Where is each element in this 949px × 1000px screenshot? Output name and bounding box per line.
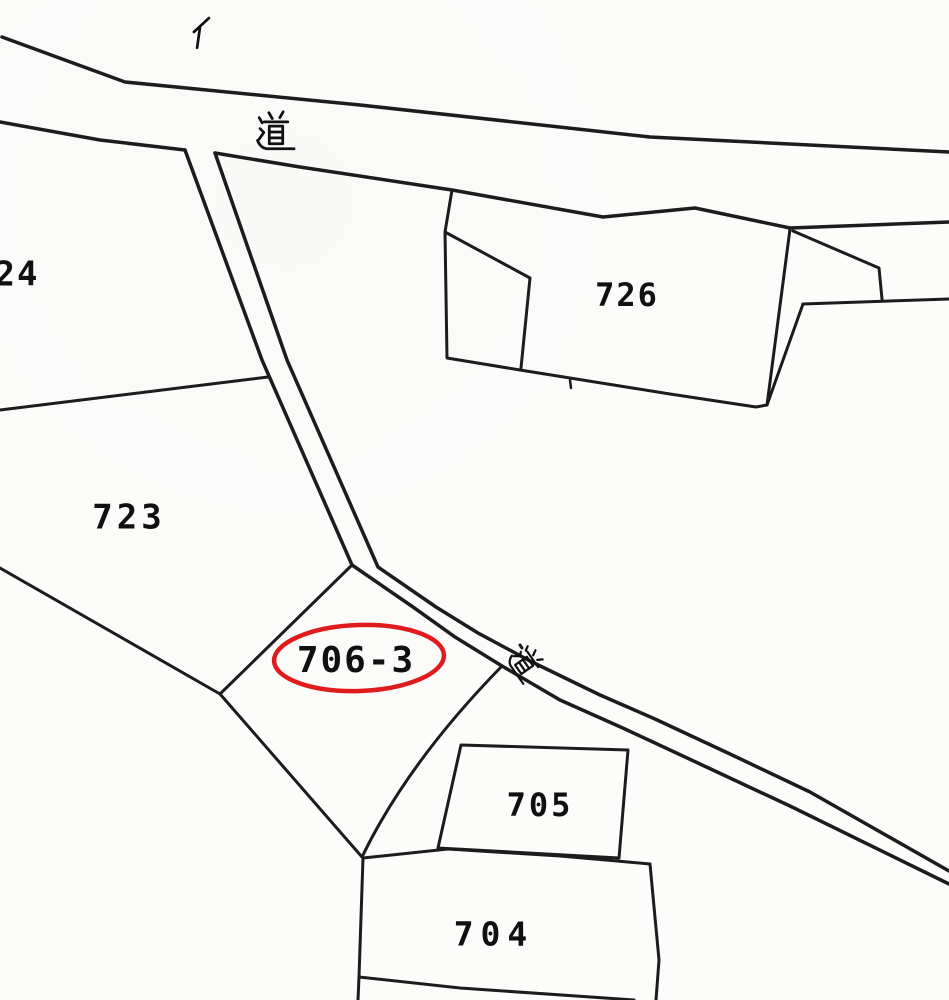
parcel-label-704: 704 [454, 915, 535, 954]
road-label-top [258, 112, 295, 149]
parcel-label-726: 726 [595, 276, 659, 314]
survey-tick [570, 380, 571, 388]
parcel-labels-layer: 24723726706-3705704 [0, 255, 659, 954]
road-main-bottom-edge-west [0, 122, 185, 150]
parcel-label-724: 24 [0, 255, 39, 295]
road-label-middle-stroke-0 [532, 650, 537, 655]
boundary-east-horizontal [803, 299, 949, 304]
branch-road-east-edge [215, 153, 949, 871]
parcel-706-3-east-edge [362, 666, 502, 857]
road-main-bottom-edge-east [215, 153, 949, 228]
road-label-top-stroke-6 [259, 118, 262, 123]
parcel-label-723: 723 [92, 498, 165, 538]
road-main-top-edge [2, 37, 949, 152]
road-label-middle-stroke-5 [519, 662, 525, 671]
parcel-label-705: 705 [507, 786, 574, 824]
parcel-704-east-edge [650, 864, 659, 1000]
marker-label-i-stroke-1 [197, 28, 200, 48]
parcel-726-inner-boundary [445, 232, 530, 368]
road-label-top-stroke-1 [280, 112, 283, 118]
road-label-top-stroke-7 [259, 129, 264, 140]
parcel-label-706-3: 706-3 [297, 640, 415, 681]
road-dot [520, 645, 522, 648]
boundary-east-wedge [793, 231, 882, 299]
road-label-top-stroke-0 [269, 113, 272, 119]
parcel-706-3-southwest-edge [220, 694, 362, 857]
kanji-labels-layer [192, 16, 548, 683]
road-label-middle-stroke-1 [537, 657, 542, 662]
road-label-top-stroke-3 [269, 126, 282, 144]
boundary-south [359, 977, 634, 1000]
road-label-middle-stroke-6 [524, 646, 529, 650]
boundary-723-south [0, 568, 220, 694]
branch-road-west-edge [185, 150, 949, 884]
road-label-middle [506, 642, 547, 683]
cadastral-map-page: 24723726706-3705704 [0, 0, 949, 1000]
cadastral-map-svg: 24723726706-3705704 [0, 0, 949, 1000]
marker-label-i-stroke-0 [194, 16, 209, 33]
boundary-724-723 [0, 377, 268, 410]
marker-label-i [192, 16, 209, 48]
